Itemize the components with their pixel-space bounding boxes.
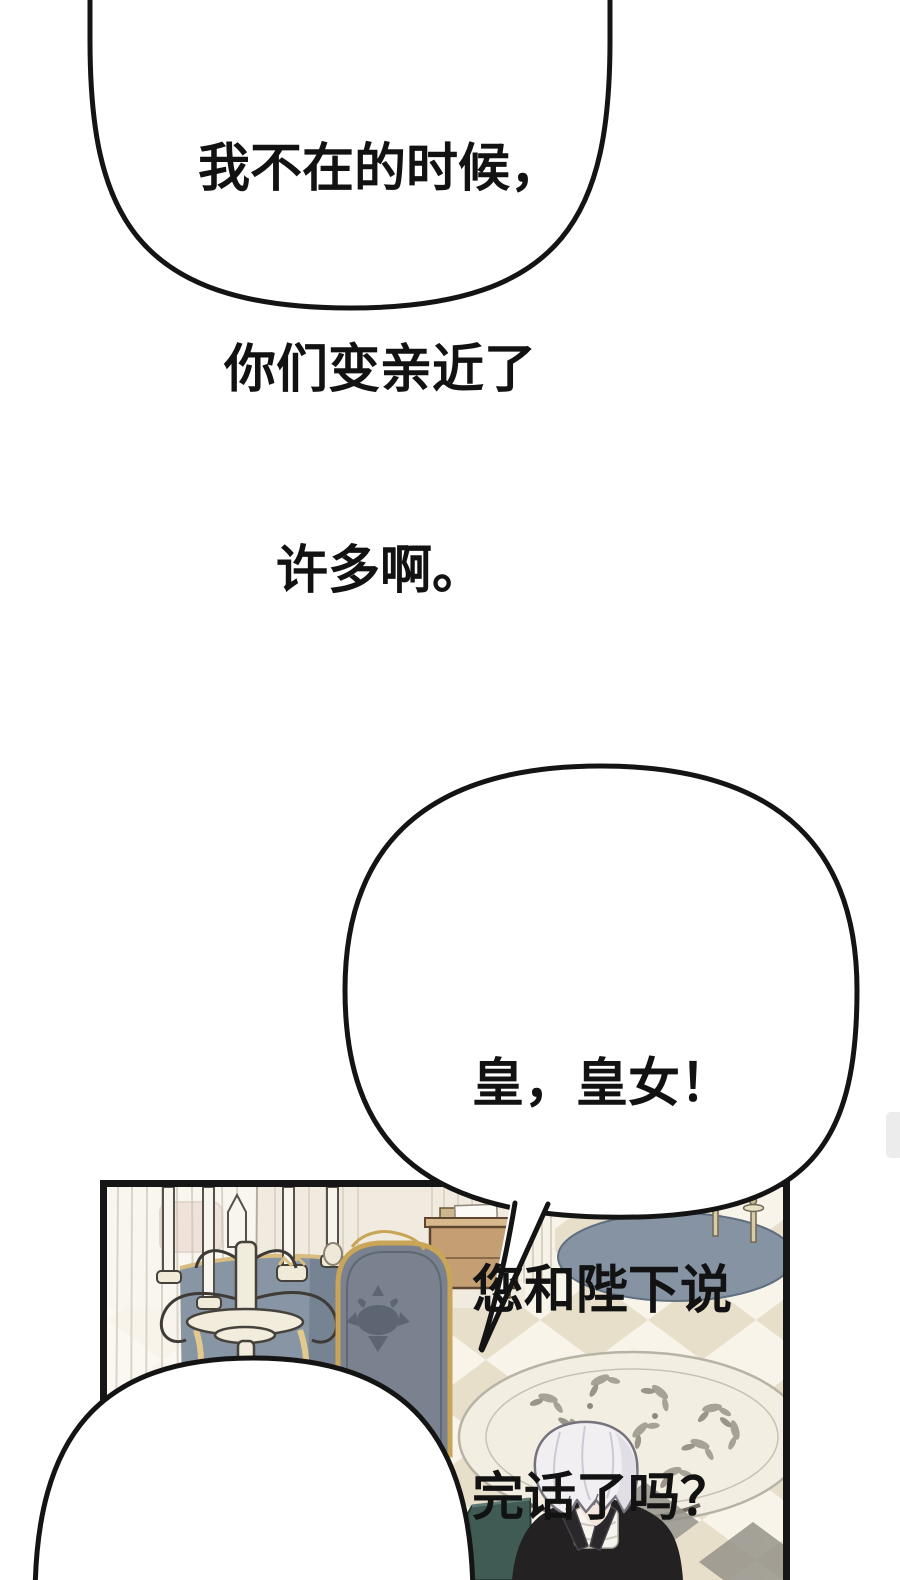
comic-artwork	[0, 0, 900, 1580]
scrollbar-thumb[interactable]	[886, 1112, 900, 1158]
webtoon-page: 我不在的时候， 你们变亲近了 许多啊。 皇，皇女！ 您和陛下说 完话了吗？ 是啊…	[0, 0, 900, 1580]
hair	[535, 1422, 638, 1516]
speech-bubble-top	[90, 0, 610, 308]
round-rug	[558, 1213, 794, 1301]
